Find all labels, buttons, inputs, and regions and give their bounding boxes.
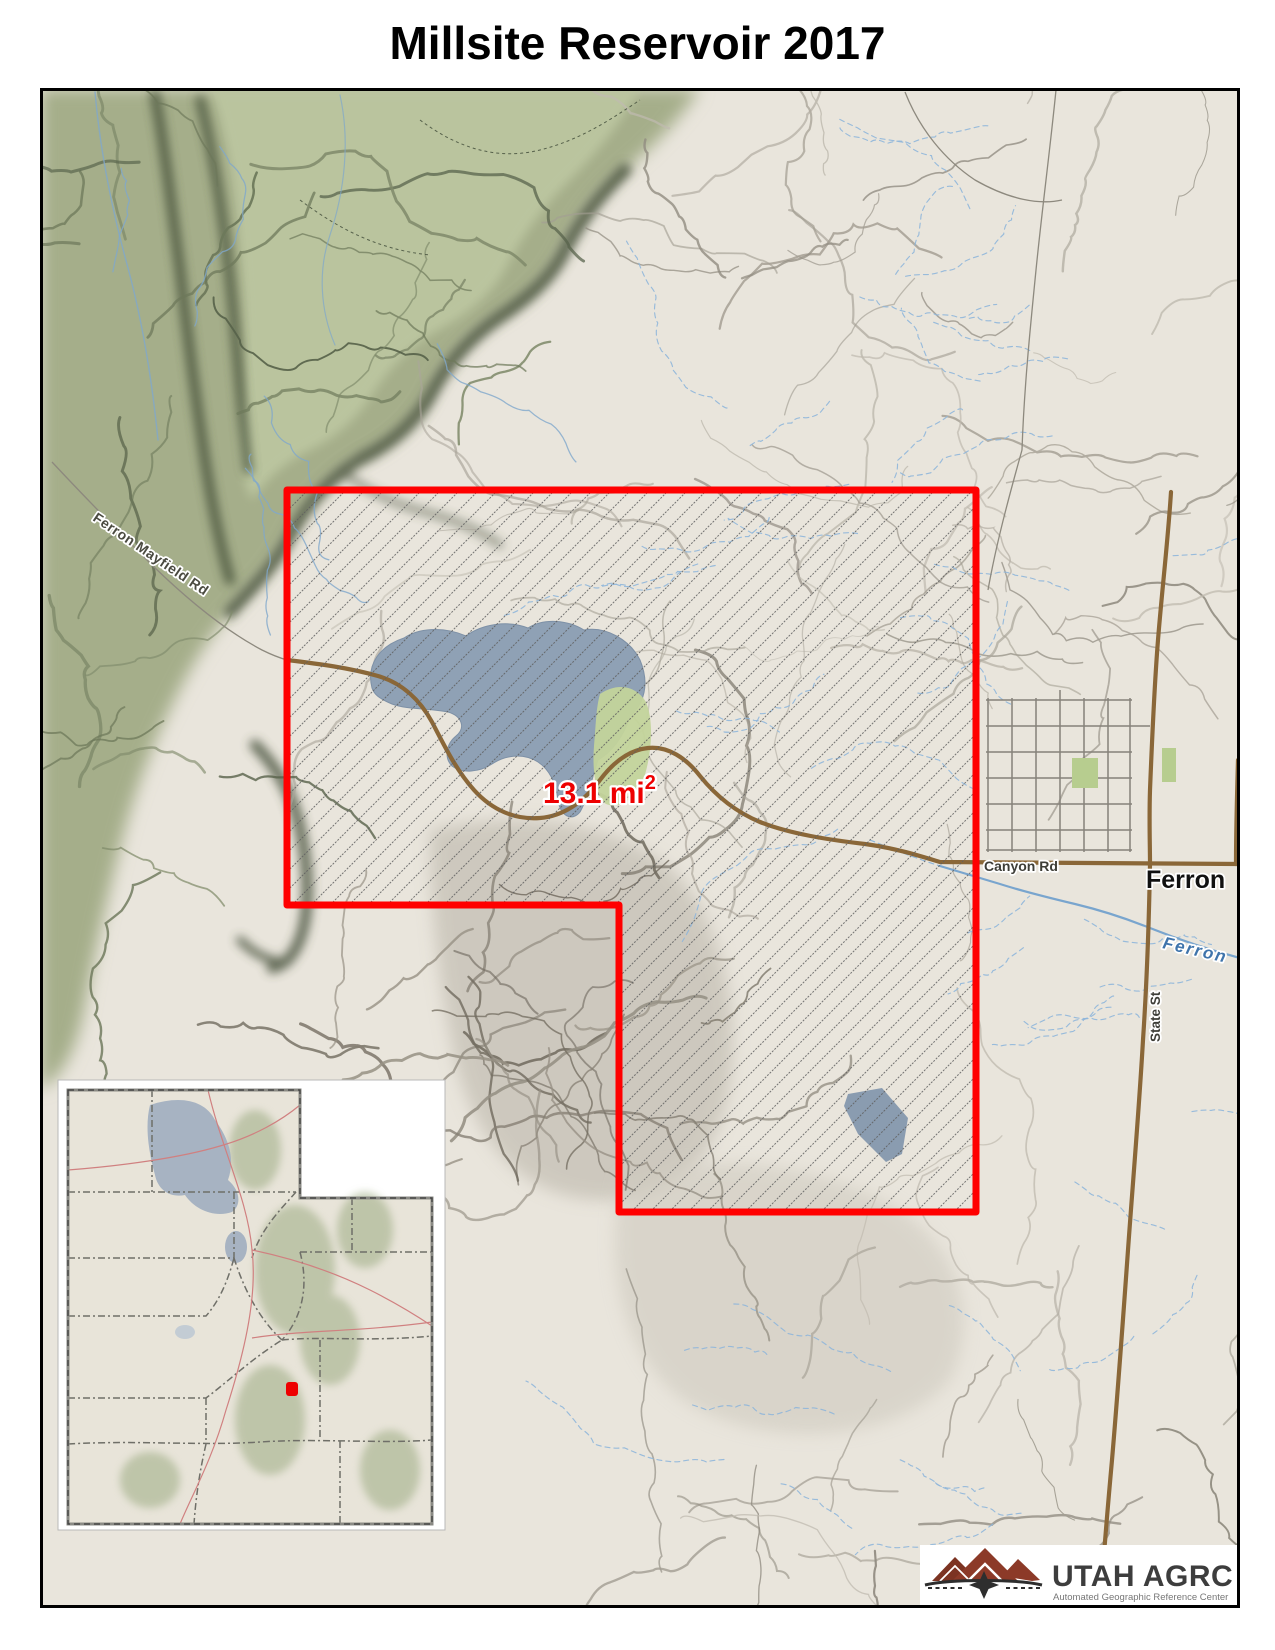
area-value-superscript: 2 [645, 772, 656, 794]
agrc-logo-tagline: Automated Geographic Reference Center [1053, 1592, 1228, 1603]
map-title: Millsite Reservoir 2017 [0, 16, 1275, 70]
agrc-logo-title: UTAH AGRC [1052, 1560, 1233, 1593]
label-state-st: State St [1148, 991, 1163, 1042]
sevier-lake [175, 1325, 195, 1339]
inset-location-marker [286, 1382, 298, 1396]
label-canyon-rd: Canyon Rd [984, 858, 1058, 874]
page: Millsite Reservoir 2017 [0, 0, 1275, 1650]
inset-locator-map [58, 1080, 445, 1530]
map-canvas: Ferron Mayfield Rd Canyon Rd Ferron Ferr… [40, 88, 1240, 1608]
label-ferron-town: Ferron [1146, 866, 1225, 894]
label-area-value: 13.1 mi2 [543, 772, 656, 810]
area-value-text: 13.1 mi [543, 777, 645, 810]
agrc-logo: UTAH AGRC Automated Geographic Reference… [920, 1545, 1238, 1606]
